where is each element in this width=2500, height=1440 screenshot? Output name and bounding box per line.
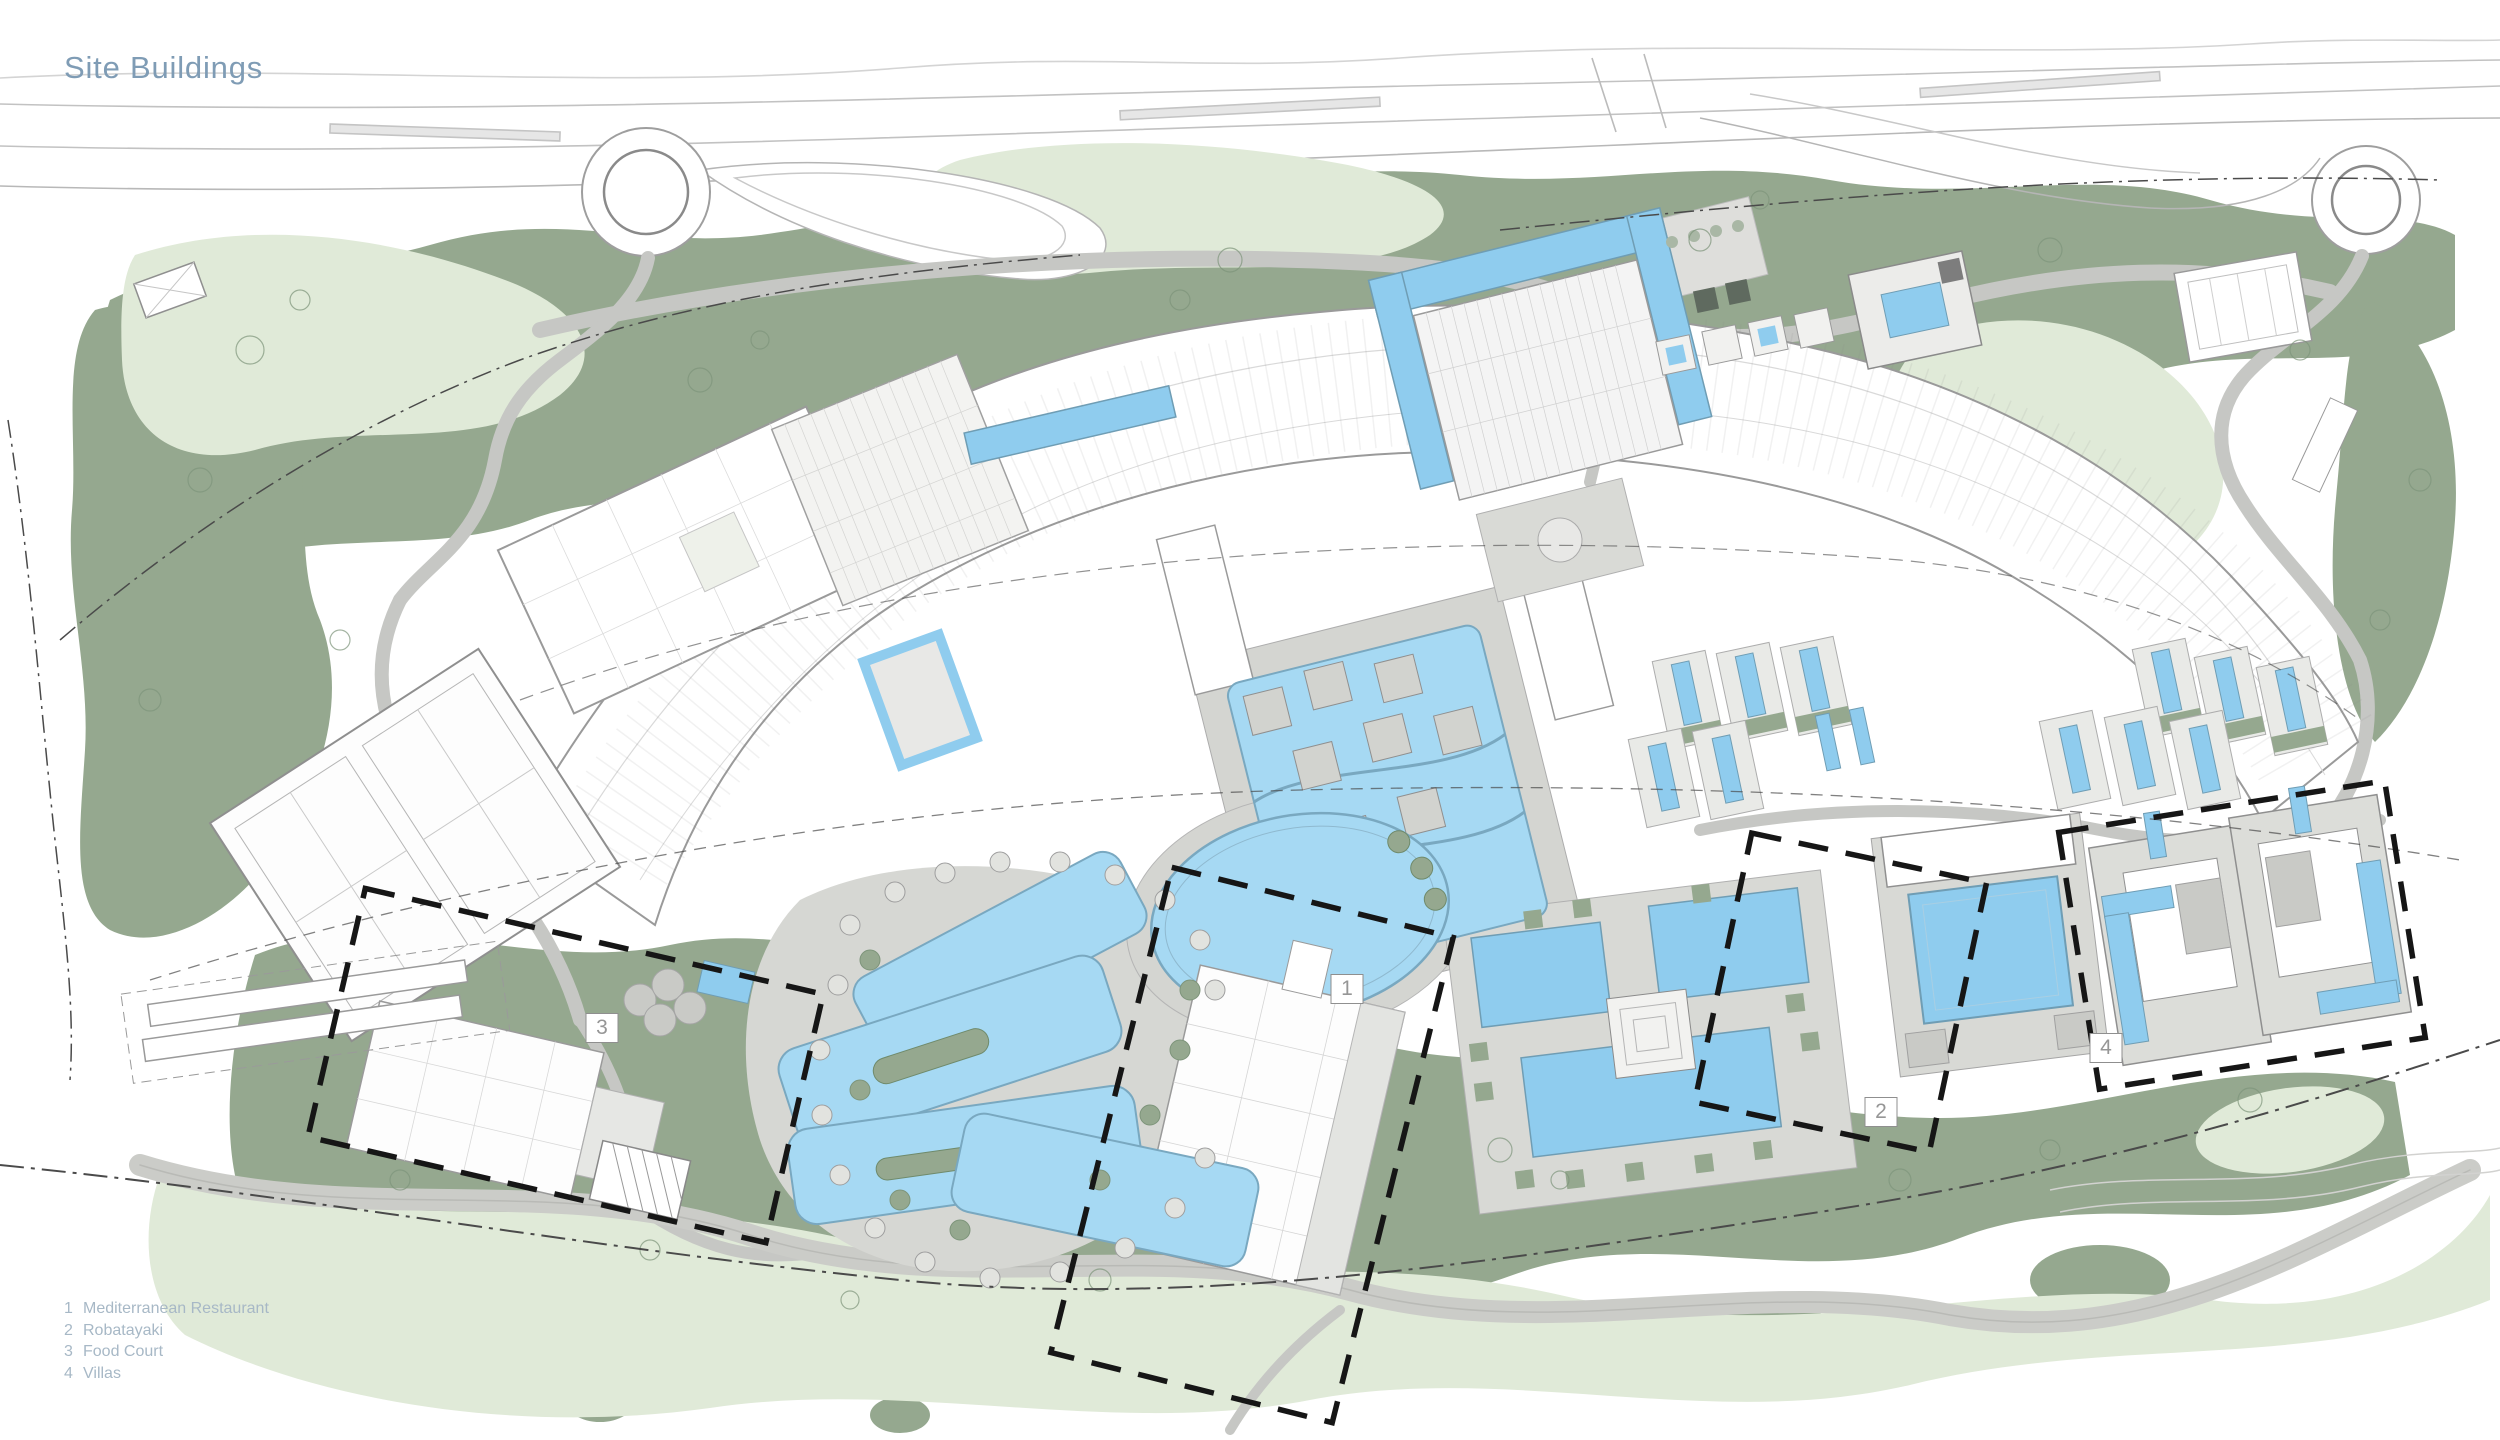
roundabout-west xyxy=(582,128,710,256)
legend-item-name: Robatayaki xyxy=(83,1322,163,1339)
legend-item-food-court: 3Food Court xyxy=(64,1341,269,1363)
villa-rows xyxy=(1628,636,2328,827)
legend-item-mediterranean-restaurant: 1Mediterranean Restaurant xyxy=(64,1298,269,1320)
arrival-court xyxy=(1476,478,1643,602)
parcel-marker-3-label: 3 xyxy=(596,1016,608,1040)
legend-item-number: 3 xyxy=(64,1341,78,1363)
legend-item-name: Mediterranean Restaurant xyxy=(83,1300,269,1317)
legend-item-number: 2 xyxy=(64,1320,78,1342)
parcel-marker-1-label: 1 xyxy=(1341,977,1353,1001)
parcel-marker-1: 1 xyxy=(1331,974,1364,1004)
site-plan-page: Site Buildings 1 2 3 4 1Mediterranean Re… xyxy=(0,0,2500,1440)
legend-item-villas: 4Villas xyxy=(64,1363,269,1385)
legend-item-number: 1 xyxy=(64,1298,78,1320)
parcel-marker-3: 3 xyxy=(586,1013,619,1043)
legend-item-name: Food Court xyxy=(83,1343,163,1360)
legend-item-robatayaki: 2Robatayaki xyxy=(64,1320,269,1342)
legend: 1Mediterranean Restaurant 2Robatayaki 3F… xyxy=(64,1298,269,1384)
parcel-marker-4-label: 4 xyxy=(2100,1036,2112,1060)
villas-area-4 xyxy=(2089,786,2412,1065)
parcel-marker-2: 2 xyxy=(1865,1097,1898,1127)
site-plan-drawing xyxy=(0,0,2500,1440)
parcel-marker-2-label: 2 xyxy=(1875,1100,1887,1124)
page-title: Site Buildings xyxy=(64,50,263,86)
roundabout-east xyxy=(2312,146,2420,254)
west-courtyard-pool xyxy=(864,635,977,766)
legend-item-name: Villas xyxy=(83,1365,121,1382)
legend-item-number: 4 xyxy=(64,1363,78,1385)
parcel-marker-4: 4 xyxy=(2090,1033,2123,1063)
